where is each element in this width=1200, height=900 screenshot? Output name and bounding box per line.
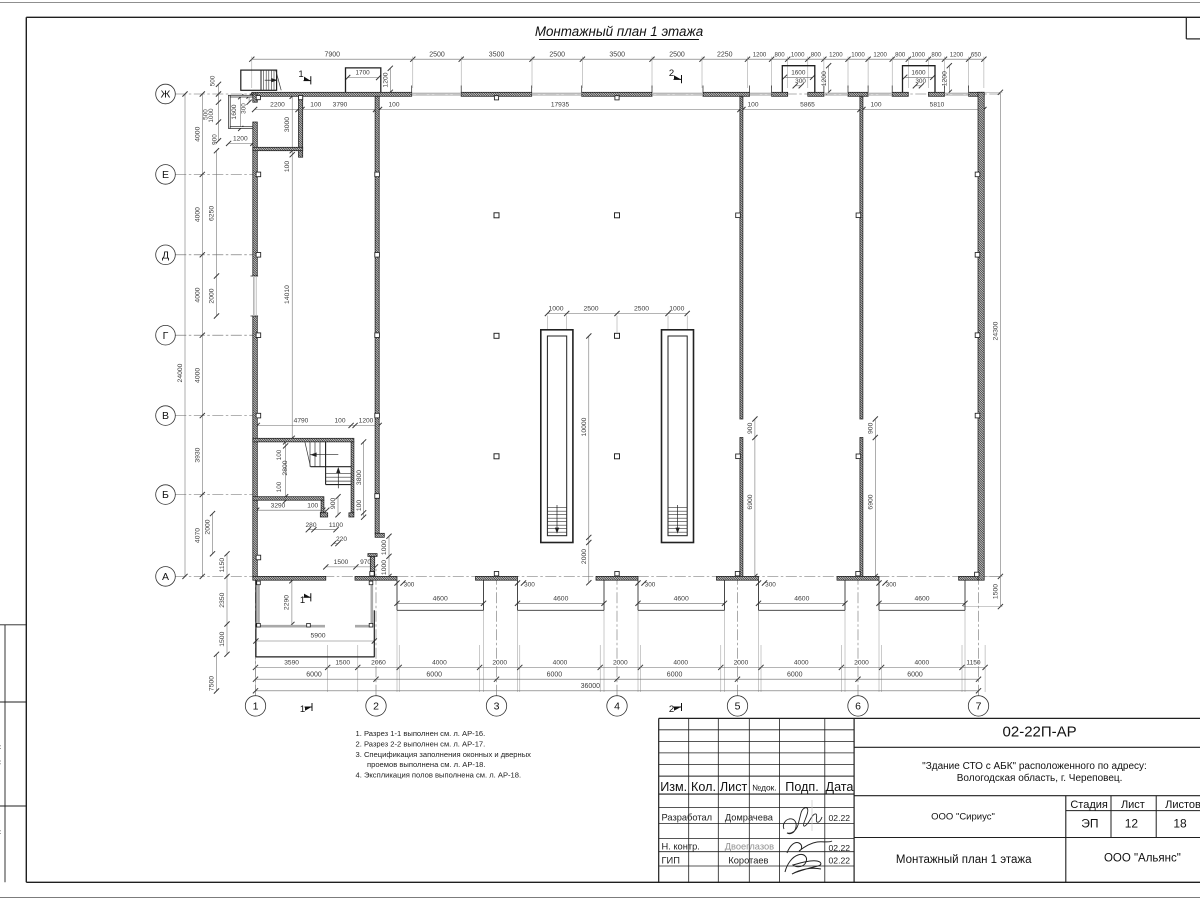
svg-text:2500: 2500 — [429, 51, 445, 58]
svg-text:2000: 2000 — [581, 549, 588, 564]
svg-text:1000: 1000 — [208, 108, 215, 123]
svg-text:5810: 5810 — [930, 102, 945, 109]
svg-text:4600: 4600 — [674, 595, 689, 602]
svg-text:Б: Б — [162, 489, 169, 501]
svg-text:900: 900 — [867, 422, 874, 434]
svg-text:4: 4 — [614, 701, 620, 713]
svg-text:1150: 1150 — [219, 558, 226, 573]
svg-text:2: 2 — [373, 701, 379, 713]
svg-text:Д: Д — [162, 249, 169, 261]
svg-text:2: 2 — [669, 704, 674, 715]
svg-text:2000: 2000 — [205, 519, 212, 534]
svg-text:1000: 1000 — [381, 540, 388, 555]
svg-text:300: 300 — [915, 78, 926, 85]
svg-text:6000: 6000 — [547, 671, 563, 678]
svg-text:№док.: №док. — [752, 782, 777, 792]
svg-text:2000: 2000 — [854, 660, 869, 667]
svg-text:4000: 4000 — [914, 660, 929, 667]
svg-text:1000: 1000 — [851, 51, 865, 58]
svg-text:24000: 24000 — [177, 363, 184, 382]
svg-text:1200: 1200 — [873, 51, 887, 58]
svg-text:14010: 14010 — [284, 285, 291, 304]
svg-text:02.22: 02.22 — [829, 813, 851, 823]
svg-text:4000: 4000 — [194, 126, 201, 141]
svg-text:300: 300 — [795, 78, 806, 85]
svg-text:1200: 1200 — [233, 135, 248, 142]
svg-text:Домрачева: Домрачева — [725, 813, 774, 823]
svg-text:3. Спецификация заполнения око: 3. Спецификация заполнения оконных и две… — [356, 750, 532, 759]
svg-text:4000: 4000 — [194, 368, 201, 383]
svg-text:7900: 7900 — [325, 51, 341, 58]
svg-text:ГИП: ГИП — [662, 855, 680, 865]
svg-text:6: 6 — [855, 701, 861, 713]
svg-text:1500: 1500 — [993, 584, 1000, 599]
svg-text:Кол.: Кол. — [691, 780, 716, 794]
svg-text:1100: 1100 — [329, 522, 344, 529]
svg-text:6250: 6250 — [209, 206, 216, 221]
svg-text:2000: 2000 — [734, 660, 749, 667]
svg-text:1200: 1200 — [942, 71, 949, 86]
svg-text:В: В — [162, 410, 169, 422]
svg-text:900: 900 — [330, 498, 337, 510]
svg-text:Подп.: Подп. — [785, 780, 818, 794]
svg-text:800: 800 — [775, 51, 786, 58]
svg-text:Разработал: Разработал — [662, 813, 713, 823]
svg-text:6900: 6900 — [747, 494, 754, 509]
svg-text:4. Экспликация полов выполнена: 4. Экспликация полов выполнена см. л. АР… — [356, 771, 522, 780]
svg-text:Монтажный план 1 этажа: Монтажный план 1 этажа — [535, 24, 703, 39]
svg-text:3500: 3500 — [489, 51, 505, 58]
svg-text:1: 1 — [298, 69, 303, 80]
svg-text:2500: 2500 — [583, 306, 598, 313]
svg-text:Вологодская область, г. Черепо: Вологодская область, г. Череповец. — [957, 772, 1123, 784]
svg-text:800: 800 — [895, 51, 906, 58]
svg-text:2290: 2290 — [284, 595, 291, 610]
svg-text:4000: 4000 — [194, 207, 201, 222]
svg-text:500: 500 — [210, 75, 217, 86]
svg-text:2350: 2350 — [219, 592, 226, 607]
svg-text:4000: 4000 — [432, 660, 447, 667]
svg-text:Коротаев: Коротаев — [728, 855, 768, 865]
svg-text:Листов: Листов — [1165, 799, 1200, 811]
svg-text:ООО "Альянс": ООО "Альянс" — [1104, 853, 1181, 865]
svg-text:3290: 3290 — [271, 502, 286, 509]
svg-text:1700: 1700 — [355, 70, 370, 77]
svg-text:5: 5 — [735, 701, 741, 713]
svg-text:1. Разрез 1-1 выполнен см. л.: 1. Разрез 1-1 выполнен см. л. АР-16. — [356, 729, 486, 738]
svg-text:ООО "Сириус": ООО "Сириус" — [931, 812, 995, 823]
svg-text:1000: 1000 — [669, 306, 684, 313]
svg-text:4600: 4600 — [794, 595, 809, 602]
svg-text:100: 100 — [870, 102, 881, 109]
svg-text:02-22П-АР: 02-22П-АР — [1003, 724, 1077, 741]
svg-text:1200: 1200 — [821, 71, 828, 86]
svg-text:7: 7 — [976, 701, 982, 713]
svg-text:4000: 4000 — [194, 287, 201, 302]
svg-text:300: 300 — [240, 103, 247, 114]
svg-text:2000: 2000 — [613, 660, 628, 667]
svg-text:1500: 1500 — [334, 559, 349, 566]
svg-text:6000: 6000 — [306, 671, 322, 678]
svg-text:12: 12 — [1125, 817, 1139, 831]
svg-text:6000: 6000 — [667, 671, 683, 678]
svg-text:100: 100 — [747, 102, 758, 109]
svg-text:17935: 17935 — [551, 102, 570, 109]
svg-text:4600: 4600 — [914, 595, 929, 602]
svg-text:100: 100 — [276, 481, 283, 492]
svg-text:2000: 2000 — [209, 288, 216, 303]
svg-text:1000: 1000 — [791, 51, 805, 58]
svg-text:24300: 24300 — [993, 321, 1000, 340]
svg-text:1200: 1200 — [359, 417, 374, 424]
svg-text:2200: 2200 — [270, 102, 285, 109]
svg-text:2500: 2500 — [549, 51, 565, 58]
svg-text:6000: 6000 — [787, 671, 803, 678]
svg-text:3500: 3500 — [609, 51, 625, 58]
svg-text:100: 100 — [356, 500, 363, 512]
svg-text:3590: 3590 — [284, 660, 299, 667]
svg-text:1: 1 — [300, 704, 305, 715]
svg-text:900: 900 — [211, 134, 218, 145]
svg-text:100: 100 — [276, 449, 283, 460]
svg-text:3790: 3790 — [333, 102, 348, 109]
svg-text:5865: 5865 — [800, 102, 815, 109]
svg-text:7500: 7500 — [209, 676, 216, 691]
svg-text:Г: Г — [163, 330, 169, 342]
svg-text:10000: 10000 — [581, 417, 588, 436]
svg-text:3: 3 — [494, 701, 500, 713]
svg-text:4790: 4790 — [294, 417, 309, 424]
svg-text:Стадия: Стадия — [1070, 799, 1108, 811]
svg-text:1600: 1600 — [231, 104, 238, 119]
svg-text:Лист: Лист — [720, 780, 748, 794]
svg-text:1600: 1600 — [791, 69, 806, 76]
svg-text:1150: 1150 — [966, 660, 981, 667]
svg-text:Монтажный план 1 этажа: Монтажный план 1 этажа — [896, 854, 1032, 866]
svg-text:2500: 2500 — [669, 51, 685, 58]
svg-text:1000: 1000 — [912, 51, 926, 58]
svg-text:"Здание СТО с АБК" расположенн: "Здание СТО с АБК" расположенного по адр… — [922, 761, 1147, 772]
svg-text:300: 300 — [524, 582, 535, 589]
svg-text:Е: Е — [162, 169, 169, 181]
svg-text:4000: 4000 — [794, 660, 809, 667]
svg-text:1: 1 — [253, 701, 259, 713]
svg-text:2. Разрез 2-2 выполнен см. л.: 2. Разрез 2-2 выполнен см. л. АР-17. — [356, 739, 486, 748]
svg-text:проемов выполнена см. л. АР-18: проемов выполнена см. л. АР-18. — [367, 760, 486, 769]
svg-text:Подп. и дата: Подп. и дата — [0, 736, 2, 772]
svg-text:1500: 1500 — [219, 631, 226, 646]
svg-text:6000: 6000 — [426, 671, 442, 678]
svg-text:1200: 1200 — [950, 51, 964, 58]
svg-text:Изм.: Изм. — [660, 780, 687, 794]
svg-text:2800: 2800 — [282, 460, 289, 475]
svg-text:02.22: 02.22 — [829, 843, 851, 853]
svg-text:36000: 36000 — [581, 683, 601, 690]
svg-text:220: 220 — [336, 536, 347, 543]
svg-text:800: 800 — [811, 51, 822, 58]
svg-text:18: 18 — [1173, 817, 1187, 831]
svg-text:4000: 4000 — [673, 660, 688, 667]
svg-text:300: 300 — [645, 582, 656, 589]
svg-text:800: 800 — [931, 51, 942, 58]
svg-text:100: 100 — [307, 502, 318, 509]
svg-text:02.22: 02.22 — [829, 856, 851, 866]
svg-text:Взам. инв. №: Взам. инв. № — [0, 645, 2, 682]
svg-text:Ж: Ж — [161, 89, 171, 101]
svg-text:1200: 1200 — [383, 72, 390, 87]
svg-text:300: 300 — [886, 582, 897, 589]
svg-text:2000: 2000 — [492, 660, 507, 667]
svg-text:Дата: Дата — [826, 780, 854, 794]
svg-text:2060: 2060 — [371, 660, 386, 667]
svg-text:280: 280 — [305, 522, 316, 529]
svg-text:300: 300 — [765, 582, 776, 589]
svg-text:3800: 3800 — [356, 470, 363, 485]
svg-text:5900: 5900 — [310, 633, 325, 640]
svg-text:3000: 3000 — [284, 117, 291, 132]
svg-text:1200: 1200 — [829, 51, 843, 58]
svg-text:2: 2 — [669, 68, 674, 79]
svg-text:6900: 6900 — [867, 494, 874, 509]
svg-text:1600: 1600 — [911, 69, 926, 76]
svg-text:1000: 1000 — [548, 306, 563, 313]
svg-text:100: 100 — [284, 161, 291, 173]
svg-text:1500: 1500 — [335, 660, 350, 667]
svg-text:Лист: Лист — [1121, 799, 1145, 811]
svg-text:970: 970 — [360, 559, 371, 566]
svg-text:2250: 2250 — [717, 51, 733, 58]
svg-text:Двоеглазов: Двоеглазов — [725, 842, 774, 852]
svg-text:900: 900 — [747, 422, 754, 434]
svg-text:1000: 1000 — [381, 560, 388, 575]
svg-text:100: 100 — [388, 102, 399, 109]
svg-text:4000: 4000 — [553, 660, 568, 667]
svg-text:100: 100 — [334, 417, 345, 424]
svg-text:А: А — [162, 571, 169, 583]
svg-text:4600: 4600 — [433, 595, 448, 602]
svg-text:3930: 3930 — [194, 447, 201, 462]
svg-text:Инв. № подл.: Инв. № подл. — [0, 825, 2, 863]
svg-text:6000: 6000 — [907, 671, 923, 678]
svg-text:4600: 4600 — [553, 595, 568, 602]
svg-text:2500: 2500 — [634, 306, 649, 313]
svg-text:300: 300 — [404, 582, 415, 589]
svg-text:Н. контр.: Н. контр. — [662, 842, 700, 852]
svg-text:650: 650 — [971, 51, 982, 58]
svg-text:4070: 4070 — [194, 528, 201, 543]
svg-text:1200: 1200 — [753, 51, 767, 58]
svg-text:100: 100 — [310, 102, 321, 109]
svg-text:ЭП: ЭП — [1081, 817, 1098, 831]
